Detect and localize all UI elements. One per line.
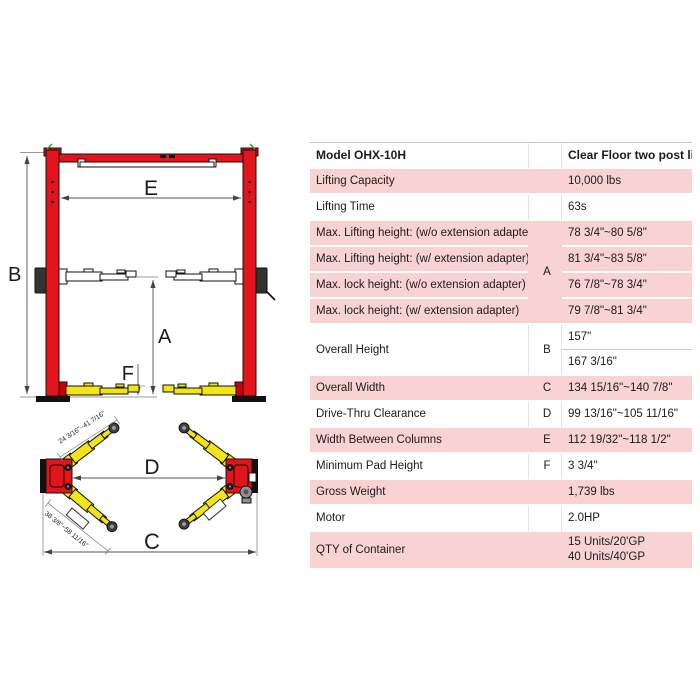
row-letter-group-a: A — [528, 221, 562, 325]
row-value: 15 Units/20'GP 40 Units/40'GP — [562, 532, 692, 570]
dim-label-f: F — [122, 363, 134, 385]
row-label: Overall Height — [310, 325, 528, 376]
crossbar-detail — [160, 155, 166, 158]
table-row: Lifting Capacity 10,000 lbs — [310, 169, 692, 195]
top-view: D C 24 3/16"~41 7/16" 38 3/8"~58 11/16" — [40, 410, 258, 556]
product-header: Clear Floor two post lift — [562, 142, 692, 169]
row-label: Drive-Thru Clearance — [310, 402, 528, 428]
crossbar-detail — [169, 155, 175, 158]
control-lever — [266, 291, 275, 300]
dim-label-b: B — [8, 264, 21, 286]
row-letter: E — [528, 428, 562, 454]
left-column — [46, 150, 59, 396]
dim-label-e: E — [144, 177, 158, 200]
letter-header — [528, 142, 562, 169]
row-letter — [528, 169, 562, 195]
power-unit-left — [35, 268, 46, 293]
row-letter: D — [528, 402, 562, 428]
row-letter — [528, 195, 562, 221]
row-letter — [528, 480, 562, 506]
power-unit-right — [256, 268, 267, 293]
table-row: Gross Weight 1,739 lbs — [310, 480, 692, 506]
row-value: 76 7/8"~78 3/4" — [562, 273, 692, 299]
row-value: 81 3/4"~83 5/8" — [562, 247, 692, 273]
bolt-dot — [51, 201, 54, 204]
row-label: Max. Lifting height: (w/ extension adapt… — [310, 247, 528, 273]
column-base-left — [40, 459, 72, 493]
row-letter — [528, 532, 562, 570]
table-row: QTY of Container 15 Units/20'GP 40 Units… — [310, 532, 692, 570]
table-header-row: Model OHX-10H Clear Floor two post lift — [310, 142, 692, 169]
lift-technical-drawing: B E — [0, 130, 312, 580]
row-label: Width Between Columns — [310, 428, 528, 454]
bolt-dot — [51, 181, 54, 184]
bolt-dot — [248, 191, 251, 194]
rear-arm-range-dim: 38 3/8"~58 11/16" — [43, 500, 111, 555]
qty-line-2: 40 Units/40'GP — [568, 550, 690, 565]
row-value: 3 3/4" — [562, 454, 692, 480]
row-label: Motor — [310, 506, 528, 532]
table-row: Overall Height B 157" — [310, 325, 692, 350]
model-header: Model OHX-10H — [310, 142, 528, 169]
table-row: Overall Width C 134 15/16"~140 7/8" — [310, 376, 692, 402]
dim-label-c: C — [144, 529, 160, 554]
table-row: Max. lock height: (w/o extension adapter… — [310, 273, 692, 299]
table-row: Motor 2.0HP — [310, 506, 692, 532]
table-row: Max. Lifting height: (w/ extension adapt… — [310, 247, 692, 273]
row-label: Overall Width — [310, 376, 528, 402]
raised-arm-right — [166, 269, 243, 284]
row-label: Max. Lifting height: (w/o extension adap… — [310, 221, 528, 247]
row-label: Minimum Pad Height — [310, 454, 528, 480]
bolt-dot — [51, 191, 54, 194]
row-label: Max. lock height: (w/o extension adapter… — [310, 273, 528, 299]
bolt-dot — [248, 201, 251, 204]
row-letter — [528, 506, 562, 532]
row-value: 1,739 lbs — [562, 480, 692, 506]
lift-diagram-svg: B E — [0, 130, 312, 580]
row-letter: F — [528, 454, 562, 480]
table-row: Max. Lifting height: (w/o extension adap… — [310, 221, 692, 247]
qty-line-1: 15 Units/20'GP — [568, 535, 690, 550]
table-row: Lifting Time 63s — [310, 195, 692, 221]
row-value: 134 15/16"~140 7/8" — [562, 376, 692, 402]
row-label: Lifting Capacity — [310, 169, 528, 195]
row-value: 112 19/32"~118 1/2" — [562, 428, 692, 454]
row-letter: B — [528, 325, 562, 376]
row-label: Max. lock height: (w/ extension adapter) — [310, 299, 528, 325]
table-row: Width Between Columns E 112 19/32"~118 1… — [310, 428, 692, 454]
base-plate-right — [232, 396, 266, 402]
table-row: Max. lock height: (w/ extension adapter)… — [310, 299, 692, 325]
base-plate-left — [36, 396, 70, 402]
raised-arm-left — [59, 269, 136, 284]
row-letter: C — [528, 376, 562, 402]
row-label: Gross Weight — [310, 480, 528, 506]
row-value: 99 13/16"~105 11/16" — [562, 402, 692, 428]
dim-label-a: A — [158, 326, 172, 348]
row-label: QTY of Container — [310, 532, 528, 570]
row-value: 79 7/8"~81 3/4" — [562, 299, 692, 325]
row-value: 10,000 lbs — [562, 169, 692, 195]
right-column — [243, 150, 256, 396]
bolt-dot — [248, 181, 251, 184]
row-value: 2.0HP — [562, 506, 692, 532]
spec-table: Model OHX-10H Clear Floor two post lift … — [310, 142, 692, 570]
dim-label-d: D — [144, 456, 159, 479]
row-value: 157" — [562, 325, 692, 350]
table-row: Minimum Pad Height F 3 3/4" — [310, 454, 692, 480]
front-view: B E — [8, 144, 275, 402]
table-row: Drive-Thru Clearance D 99 13/16"~105 11/… — [310, 402, 692, 428]
row-value: 63s — [562, 195, 692, 221]
lowered-arm-right — [163, 382, 243, 396]
row-value: 78 3/4"~80 5/8" — [562, 221, 692, 247]
row-label: Lifting Time — [310, 195, 528, 221]
overhead-shutoff-bar — [80, 162, 214, 167]
row-value: 167 3/16" — [562, 350, 692, 376]
